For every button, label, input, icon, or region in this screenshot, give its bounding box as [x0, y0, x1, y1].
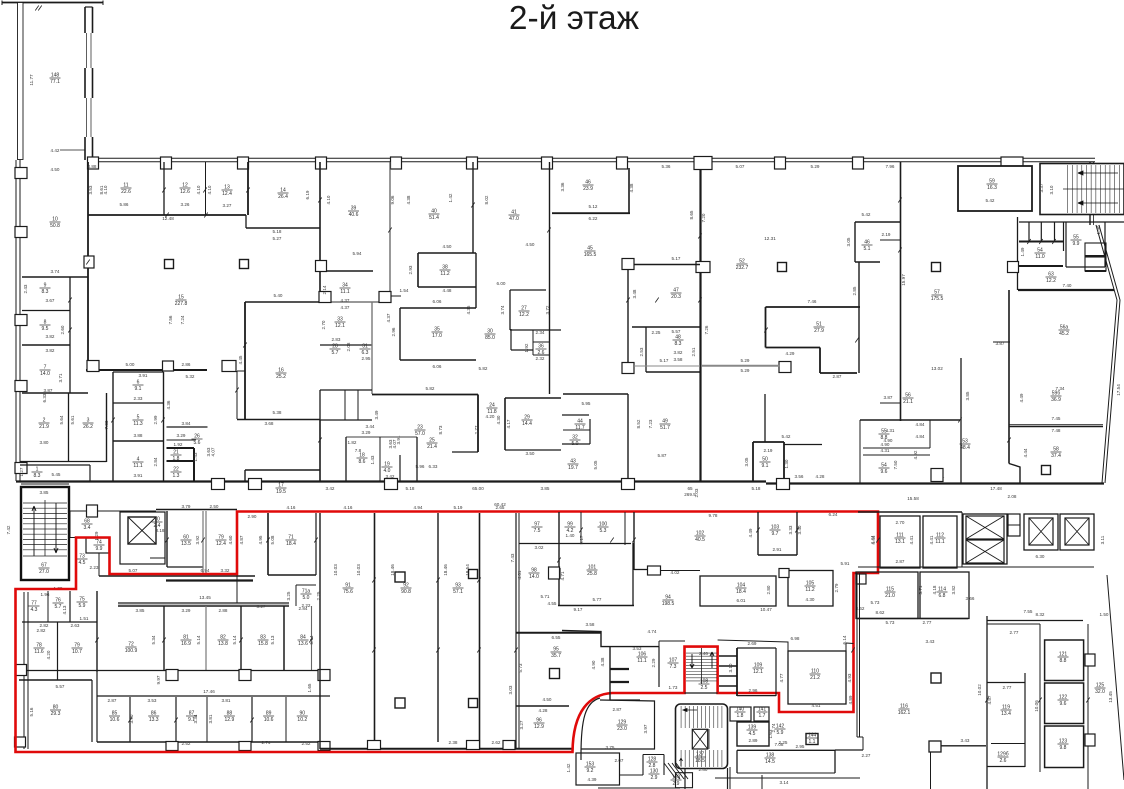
svg-text:13.02: 13.02: [931, 366, 943, 371]
svg-text:13.6: 13.6: [298, 641, 308, 647]
svg-text:3.74: 3.74: [51, 269, 60, 274]
svg-text:11.2: 11.2: [440, 271, 450, 277]
svg-text:4.48: 4.48: [443, 288, 452, 293]
svg-text:4.92: 4.92: [913, 450, 918, 459]
svg-text:7.56: 7.56: [168, 315, 173, 324]
svg-text:4.89: 4.89: [848, 695, 853, 704]
svg-text:3.85: 3.85: [541, 486, 550, 491]
svg-text:3.4: 3.4: [84, 525, 91, 531]
svg-text:2.70: 2.70: [896, 520, 905, 525]
svg-text:17.0: 17.0: [432, 333, 442, 339]
svg-text:4.16: 4.16: [344, 505, 353, 510]
svg-text:37.4: 37.4: [1051, 453, 1061, 459]
svg-text:3.56: 3.56: [795, 474, 804, 479]
svg-text:7.24: 7.24: [180, 315, 185, 324]
svg-text:4.60: 4.60: [228, 535, 233, 544]
svg-text:3.66: 3.66: [966, 596, 975, 601]
svg-text:1.73: 1.73: [669, 685, 678, 690]
svg-text:2.29: 2.29: [651, 658, 656, 667]
svg-text:5.18: 5.18: [752, 486, 761, 491]
svg-text:3.29: 3.29: [177, 433, 186, 438]
svg-text:3.29: 3.29: [362, 430, 371, 435]
svg-text:5.6: 5.6: [194, 440, 201, 446]
svg-text:5.29: 5.29: [811, 164, 820, 169]
svg-text:2.69: 2.69: [748, 641, 757, 646]
svg-text:5.87: 5.87: [658, 453, 667, 458]
svg-text:5.82: 5.82: [479, 366, 488, 371]
svg-text:22.6: 22.6: [121, 189, 131, 195]
svg-text:3.49: 3.49: [374, 410, 379, 419]
svg-text:57.1: 57.1: [453, 589, 463, 595]
svg-text:3.43: 3.43: [961, 738, 970, 743]
svg-text:4.74: 4.74: [648, 629, 657, 634]
svg-text:4.28: 4.28: [539, 708, 548, 713]
svg-text:1.8: 1.8: [173, 456, 180, 462]
svg-text:4.87: 4.87: [239, 535, 244, 544]
svg-text:1.8: 1.8: [737, 713, 744, 719]
svg-text:7.5: 7.5: [534, 528, 541, 534]
svg-text:4.50: 4.50: [526, 242, 535, 247]
svg-text:1.43: 1.43: [193, 452, 198, 461]
svg-text:8.8: 8.8: [881, 435, 888, 441]
svg-text:2.87: 2.87: [613, 707, 622, 712]
svg-text:3.53: 3.53: [633, 646, 642, 651]
svg-text:5.0: 5.0: [303, 595, 310, 601]
svg-text:5.38: 5.38: [273, 410, 282, 415]
svg-text:25.8: 25.8: [587, 571, 597, 577]
svg-text:5.42: 5.42: [862, 212, 871, 217]
svg-text:4.38: 4.38: [406, 195, 411, 204]
svg-text:2.32: 2.32: [536, 356, 545, 361]
svg-text:2.43: 2.43: [23, 284, 28, 293]
svg-text:2.93: 2.93: [408, 265, 413, 274]
svg-text:5.86: 5.86: [120, 202, 129, 207]
svg-text:12.9: 12.9: [534, 724, 544, 730]
svg-text:8.3: 8.3: [42, 289, 49, 295]
svg-text:6.30: 6.30: [1036, 554, 1045, 559]
svg-text:65: 65: [687, 486, 693, 491]
svg-text:2.87: 2.87: [833, 374, 842, 379]
svg-text:3.29: 3.29: [182, 608, 191, 613]
svg-text:5.29: 5.29: [741, 368, 750, 373]
svg-text:5.07: 5.07: [129, 568, 138, 573]
svg-text:1.1: 1.1: [809, 739, 816, 745]
svg-text:1.29: 1.29: [94, 531, 99, 540]
svg-text:8.8: 8.8: [1060, 658, 1067, 664]
svg-text:5.07: 5.07: [736, 164, 745, 169]
svg-text:2.80: 2.80: [766, 585, 771, 594]
svg-text:4.88: 4.88: [88, 164, 97, 169]
svg-text:12.31: 12.31: [764, 236, 776, 241]
svg-text:11.6: 11.6: [34, 649, 44, 655]
svg-text:14.0: 14.0: [529, 574, 539, 580]
svg-text:5.61: 5.61: [70, 415, 75, 424]
svg-text:26.4: 26.4: [278, 194, 288, 200]
svg-text:10.2: 10.2: [297, 717, 307, 723]
svg-text:21.0: 21.0: [885, 593, 895, 599]
svg-text:2.90: 2.90: [248, 514, 257, 519]
svg-text:9.9: 9.9: [96, 546, 103, 552]
svg-text:9.1: 9.1: [135, 386, 142, 392]
svg-text:12.1: 12.1: [753, 669, 763, 675]
svg-text:5.7: 5.7: [332, 350, 339, 356]
svg-text:17.48: 17.48: [990, 486, 1002, 491]
svg-text:11.1: 11.1: [340, 289, 350, 295]
svg-text:2.6: 2.6: [1000, 758, 1007, 764]
svg-text:4.30: 4.30: [496, 415, 501, 424]
svg-text:8.32: 8.32: [1036, 612, 1045, 617]
svg-text:4.17: 4.17: [506, 419, 511, 428]
svg-text:4.50: 4.50: [543, 697, 552, 702]
svg-text:35.7: 35.7: [551, 653, 561, 659]
svg-text:5.82: 5.82: [426, 386, 435, 391]
svg-text:5.18: 5.18: [406, 486, 415, 491]
svg-text:9.1: 9.1: [762, 463, 769, 469]
svg-text:2.82: 2.82: [37, 628, 46, 633]
svg-text:12.1: 12.1: [335, 323, 345, 329]
svg-text:45.2: 45.2: [1059, 331, 1069, 337]
svg-text:26.2: 26.2: [83, 424, 93, 430]
svg-text:1.3: 1.3: [173, 473, 180, 479]
svg-text:3.97: 3.97: [643, 724, 648, 733]
svg-text:9.97: 9.97: [156, 675, 161, 684]
svg-text:4.30: 4.30: [806, 597, 815, 602]
svg-text:5.40: 5.40: [274, 293, 283, 298]
svg-text:4.55: 4.55: [548, 601, 557, 606]
svg-text:4.51: 4.51: [812, 703, 821, 708]
svg-text:5.9: 5.9: [79, 603, 86, 609]
svg-text:2.19: 2.19: [764, 448, 773, 453]
svg-text:5.18: 5.18: [273, 229, 282, 234]
svg-text:10.6: 10.6: [264, 717, 274, 723]
svg-text:2.70: 2.70: [321, 320, 326, 329]
svg-text:4.13: 4.13: [62, 605, 67, 614]
svg-text:13.45: 13.45: [1108, 691, 1113, 703]
svg-text:2.77: 2.77: [474, 425, 479, 434]
svg-text:2.33: 2.33: [134, 396, 143, 401]
svg-text:4.45: 4.45: [238, 355, 243, 364]
svg-text:3.25: 3.25: [286, 591, 291, 600]
svg-text:5.71: 5.71: [541, 594, 550, 599]
svg-text:3.27: 3.27: [257, 604, 266, 609]
svg-text:3.92: 3.92: [195, 535, 200, 544]
svg-text:9.17: 9.17: [579, 535, 584, 544]
svg-text:3.91: 3.91: [134, 473, 143, 478]
svg-text:3.27: 3.27: [223, 203, 232, 208]
svg-text:18.46: 18.46: [390, 564, 395, 576]
svg-text:5.7: 5.7: [55, 604, 62, 610]
svg-text:5.17: 5.17: [660, 358, 669, 363]
svg-text:11.1: 11.1: [935, 539, 945, 545]
svg-text:8.52: 8.52: [636, 419, 641, 428]
svg-text:18.4: 18.4: [286, 541, 296, 547]
svg-text:2.62: 2.62: [492, 740, 501, 745]
svg-text:4.77: 4.77: [779, 673, 784, 682]
svg-text:3.68: 3.68: [265, 421, 274, 426]
svg-text:17.46: 17.46: [203, 689, 215, 694]
svg-text:1.27: 1.27: [19, 467, 24, 476]
svg-text:5.45: 5.45: [52, 472, 61, 477]
svg-text:1.65: 1.65: [307, 683, 312, 692]
svg-text:8.3: 8.3: [34, 473, 41, 479]
svg-text:4.37: 4.37: [341, 298, 350, 303]
svg-text:4.49: 4.49: [748, 528, 753, 537]
svg-text:2.25: 2.25: [652, 330, 661, 335]
svg-text:4.44: 4.44: [871, 535, 876, 544]
svg-text:7.08: 7.08: [775, 742, 784, 747]
svg-text:12.4: 12.4: [216, 541, 226, 547]
svg-text:3.26: 3.26: [181, 202, 190, 207]
svg-text:7.50: 7.50: [893, 460, 898, 469]
svg-text:2.5: 2.5: [701, 685, 708, 691]
svg-text:2.79: 2.79: [834, 583, 839, 592]
svg-text:2.84: 2.84: [153, 457, 158, 466]
svg-text:4.20: 4.20: [486, 414, 495, 419]
svg-text:8.6: 8.6: [359, 459, 366, 465]
svg-text:9.6: 9.6: [881, 469, 888, 475]
svg-text:2.83: 2.83: [332, 337, 341, 342]
svg-text:5.14: 5.14: [196, 635, 201, 644]
svg-text:32.0: 32.0: [1095, 689, 1105, 695]
svg-text:11.1: 11.1: [133, 463, 143, 469]
svg-text:5.12: 5.12: [589, 204, 598, 209]
svg-text:6.33: 6.33: [429, 464, 438, 469]
svg-text:6.06: 6.06: [433, 364, 442, 369]
svg-text:21.4: 21.4: [427, 444, 437, 450]
svg-text:5.73: 5.73: [518, 663, 523, 672]
svg-text:5.57: 5.57: [56, 684, 65, 689]
svg-text:1.92: 1.92: [174, 442, 183, 447]
svg-text:2.38: 2.38: [449, 740, 458, 745]
svg-text:8.02: 8.02: [484, 195, 489, 204]
svg-text:5.3: 5.3: [600, 528, 607, 534]
svg-text:13.1: 13.1: [895, 539, 905, 545]
svg-text:1.51: 1.51: [80, 616, 89, 621]
svg-text:7.48: 7.48: [1052, 428, 1061, 433]
svg-text:2.19: 2.19: [882, 232, 891, 237]
svg-text:6.22: 6.22: [589, 216, 598, 221]
svg-text:21.9: 21.9: [39, 424, 49, 430]
svg-text:85.0: 85.0: [485, 335, 495, 341]
svg-text:3.50: 3.50: [526, 451, 535, 456]
svg-text:6.55: 6.55: [552, 635, 561, 640]
svg-text:3.33: 3.33: [788, 525, 793, 534]
svg-text:17.54: 17.54: [1116, 384, 1121, 396]
svg-text:90.8: 90.8: [401, 589, 411, 595]
svg-text:16.3: 16.3: [987, 185, 997, 191]
svg-text:5.73: 5.73: [871, 600, 880, 605]
svg-text:3.27: 3.27: [519, 720, 524, 729]
svg-text:5.42: 5.42: [782, 434, 791, 439]
svg-text:4.41: 4.41: [929, 535, 934, 544]
svg-text:13.4: 13.4: [1001, 711, 1011, 717]
svg-text:2-й этаж: 2-й этаж: [509, 0, 640, 37]
svg-text:5.57: 5.57: [672, 329, 681, 334]
svg-text:2.27: 2.27: [862, 753, 871, 758]
svg-text:3.32: 3.32: [221, 568, 230, 573]
svg-text:3.53: 3.53: [148, 698, 157, 703]
svg-text:3.43: 3.43: [926, 639, 935, 644]
svg-text:4.31: 4.31: [881, 448, 890, 453]
svg-text:19.5: 19.5: [276, 489, 286, 495]
svg-text:2.08: 2.08: [1008, 494, 1017, 499]
svg-text:3.82: 3.82: [674, 350, 683, 355]
svg-text:5.00: 5.00: [126, 362, 135, 367]
svg-text:5.9: 5.9: [777, 730, 784, 736]
svg-text:8.62: 8.62: [876, 610, 885, 615]
svg-text:6.8: 6.8: [939, 593, 946, 599]
svg-text:3.05: 3.05: [744, 457, 749, 466]
svg-text:8.3: 8.3: [675, 341, 682, 347]
svg-text:2.9: 2.9: [673, 781, 680, 787]
svg-text:5.34: 5.34: [151, 635, 156, 644]
svg-text:1.40: 1.40: [566, 533, 575, 538]
svg-text:1.54: 1.54: [400, 288, 409, 293]
svg-text:4.10: 4.10: [196, 185, 201, 194]
svg-text:2.82: 2.82: [40, 623, 49, 628]
svg-text:2.87: 2.87: [896, 559, 905, 564]
svg-text:4.07: 4.07: [392, 439, 397, 448]
svg-text:4.18: 4.18: [932, 585, 937, 594]
svg-text:7.46: 7.46: [808, 299, 817, 304]
svg-text:3.85: 3.85: [965, 391, 970, 400]
svg-text:4.29: 4.29: [786, 351, 795, 356]
svg-text:5.08: 5.08: [270, 535, 275, 544]
svg-text:4.36: 4.36: [466, 305, 471, 314]
svg-text:3.81: 3.81: [208, 714, 213, 723]
svg-text:227.8: 227.8: [175, 301, 188, 307]
svg-text:232.7: 232.7: [736, 265, 749, 271]
svg-text:4.31: 4.31: [886, 428, 895, 433]
svg-text:5.77: 5.77: [593, 597, 602, 602]
svg-text:4.20: 4.20: [46, 650, 51, 659]
svg-text:4.71: 4.71: [560, 571, 565, 580]
svg-text:3.67: 3.67: [46, 298, 55, 303]
svg-text:4.95: 4.95: [258, 535, 263, 544]
svg-text:4.57: 4.57: [987, 695, 992, 704]
svg-text:4.50: 4.50: [51, 167, 60, 172]
svg-text:6.98: 6.98: [791, 636, 800, 641]
svg-text:11.2: 11.2: [805, 587, 815, 593]
svg-text:4.61: 4.61: [517, 570, 522, 579]
svg-text:10.03: 10.03: [333, 564, 338, 576]
svg-text:25.2: 25.2: [276, 374, 286, 380]
svg-text:2.95: 2.95: [362, 356, 371, 361]
svg-text:2.07: 2.07: [615, 758, 624, 763]
svg-text:2.89: 2.89: [749, 738, 758, 743]
svg-text:2.34: 2.34: [536, 330, 545, 335]
svg-text:3.75: 3.75: [606, 745, 615, 750]
svg-text:2.96: 2.96: [391, 327, 396, 336]
svg-text:2.9: 2.9: [651, 775, 658, 781]
svg-text:6.00: 6.00: [497, 281, 506, 286]
svg-text:3.36: 3.36: [560, 182, 565, 191]
svg-text:2.08: 2.08: [346, 342, 351, 351]
svg-text:5.16: 5.16: [29, 707, 34, 716]
svg-text:2.03: 2.03: [694, 488, 699, 497]
svg-text:2.86: 2.86: [182, 362, 191, 367]
svg-text:2.74: 2.74: [262, 740, 271, 745]
svg-text:7.3: 7.3: [670, 664, 677, 670]
svg-text:2.87: 2.87: [108, 698, 117, 703]
svg-text:4.42: 4.42: [51, 148, 60, 153]
svg-text:21.2: 21.2: [810, 675, 820, 681]
svg-text:6.24: 6.24: [829, 512, 838, 517]
svg-text:2.14: 2.14: [322, 285, 327, 294]
svg-text:2.51: 2.51: [691, 347, 696, 356]
svg-text:51.4: 51.4: [429, 215, 439, 221]
svg-text:7.40: 7.40: [1063, 283, 1072, 288]
svg-text:6.19: 6.19: [305, 190, 310, 199]
svg-text:5.32: 5.32: [186, 374, 195, 379]
svg-text:3.79: 3.79: [182, 504, 191, 509]
svg-text:4.10: 4.10: [103, 185, 108, 194]
svg-text:2.53: 2.53: [639, 347, 644, 356]
svg-text:14.4: 14.4: [522, 421, 532, 427]
svg-text:15.8: 15.8: [258, 641, 268, 647]
svg-text:9.9: 9.9: [1073, 241, 1080, 247]
svg-text:11.3: 11.3: [133, 421, 143, 427]
svg-text:7.8: 7.8: [355, 448, 362, 453]
svg-text:5.95: 5.95: [582, 401, 591, 406]
svg-text:14.5: 14.5: [765, 759, 775, 765]
svg-text:15.58: 15.58: [907, 496, 919, 501]
svg-text:4.10: 4.10: [326, 195, 331, 204]
svg-text:5.91: 5.91: [841, 561, 850, 566]
svg-text:10.02: 10.02: [977, 684, 982, 696]
svg-text:4.36: 4.36: [166, 400, 171, 409]
svg-text:9.8: 9.8: [1060, 745, 1067, 751]
svg-text:2.52: 2.52: [302, 741, 311, 746]
svg-text:7.42: 7.42: [6, 525, 11, 534]
svg-text:8.73: 8.73: [438, 425, 443, 434]
svg-text:3.10: 3.10: [728, 663, 733, 672]
svg-text:3.90: 3.90: [129, 714, 134, 723]
svg-text:4.49: 4.49: [1019, 393, 1024, 402]
svg-text:2.74: 2.74: [771, 723, 776, 732]
svg-text:3.80: 3.80: [40, 440, 49, 445]
svg-text:1.50: 1.50: [1100, 612, 1109, 617]
svg-text:27.0: 27.0: [39, 569, 49, 575]
svg-text:14.0: 14.0: [40, 371, 50, 377]
svg-text:3.40: 3.40: [797, 525, 802, 534]
svg-text:5.05: 5.05: [593, 460, 598, 469]
svg-text:4.07: 4.07: [211, 447, 216, 456]
svg-text:5.94: 5.94: [353, 251, 362, 256]
svg-text:20.3: 20.3: [671, 294, 681, 300]
svg-text:4.90: 4.90: [881, 442, 890, 447]
svg-text:50.8: 50.8: [50, 223, 60, 229]
svg-text:8.65: 8.65: [689, 210, 694, 219]
svg-text:10.47: 10.47: [760, 607, 772, 612]
svg-text:1.90: 1.90: [1096, 225, 1101, 234]
svg-text:3.05: 3.05: [846, 237, 851, 246]
svg-text:2.80: 2.80: [699, 767, 708, 772]
svg-text:5.19: 5.19: [454, 505, 463, 510]
svg-text:12.4: 12.4: [222, 191, 232, 197]
svg-text:4.28: 4.28: [816, 474, 825, 479]
svg-text:3.11: 3.11: [1100, 535, 1105, 544]
svg-text:4.02: 4.02: [671, 570, 680, 575]
svg-text:48.4: 48.4: [960, 445, 970, 451]
svg-text:7.20: 7.20: [701, 213, 706, 222]
svg-text:10.03: 10.03: [356, 564, 361, 576]
svg-text:9.17: 9.17: [574, 607, 583, 612]
svg-text:3.74: 3.74: [500, 305, 505, 314]
svg-text:5.73: 5.73: [886, 620, 895, 625]
svg-text:18.4: 18.4: [736, 589, 746, 595]
svg-text:2.77: 2.77: [923, 620, 932, 625]
